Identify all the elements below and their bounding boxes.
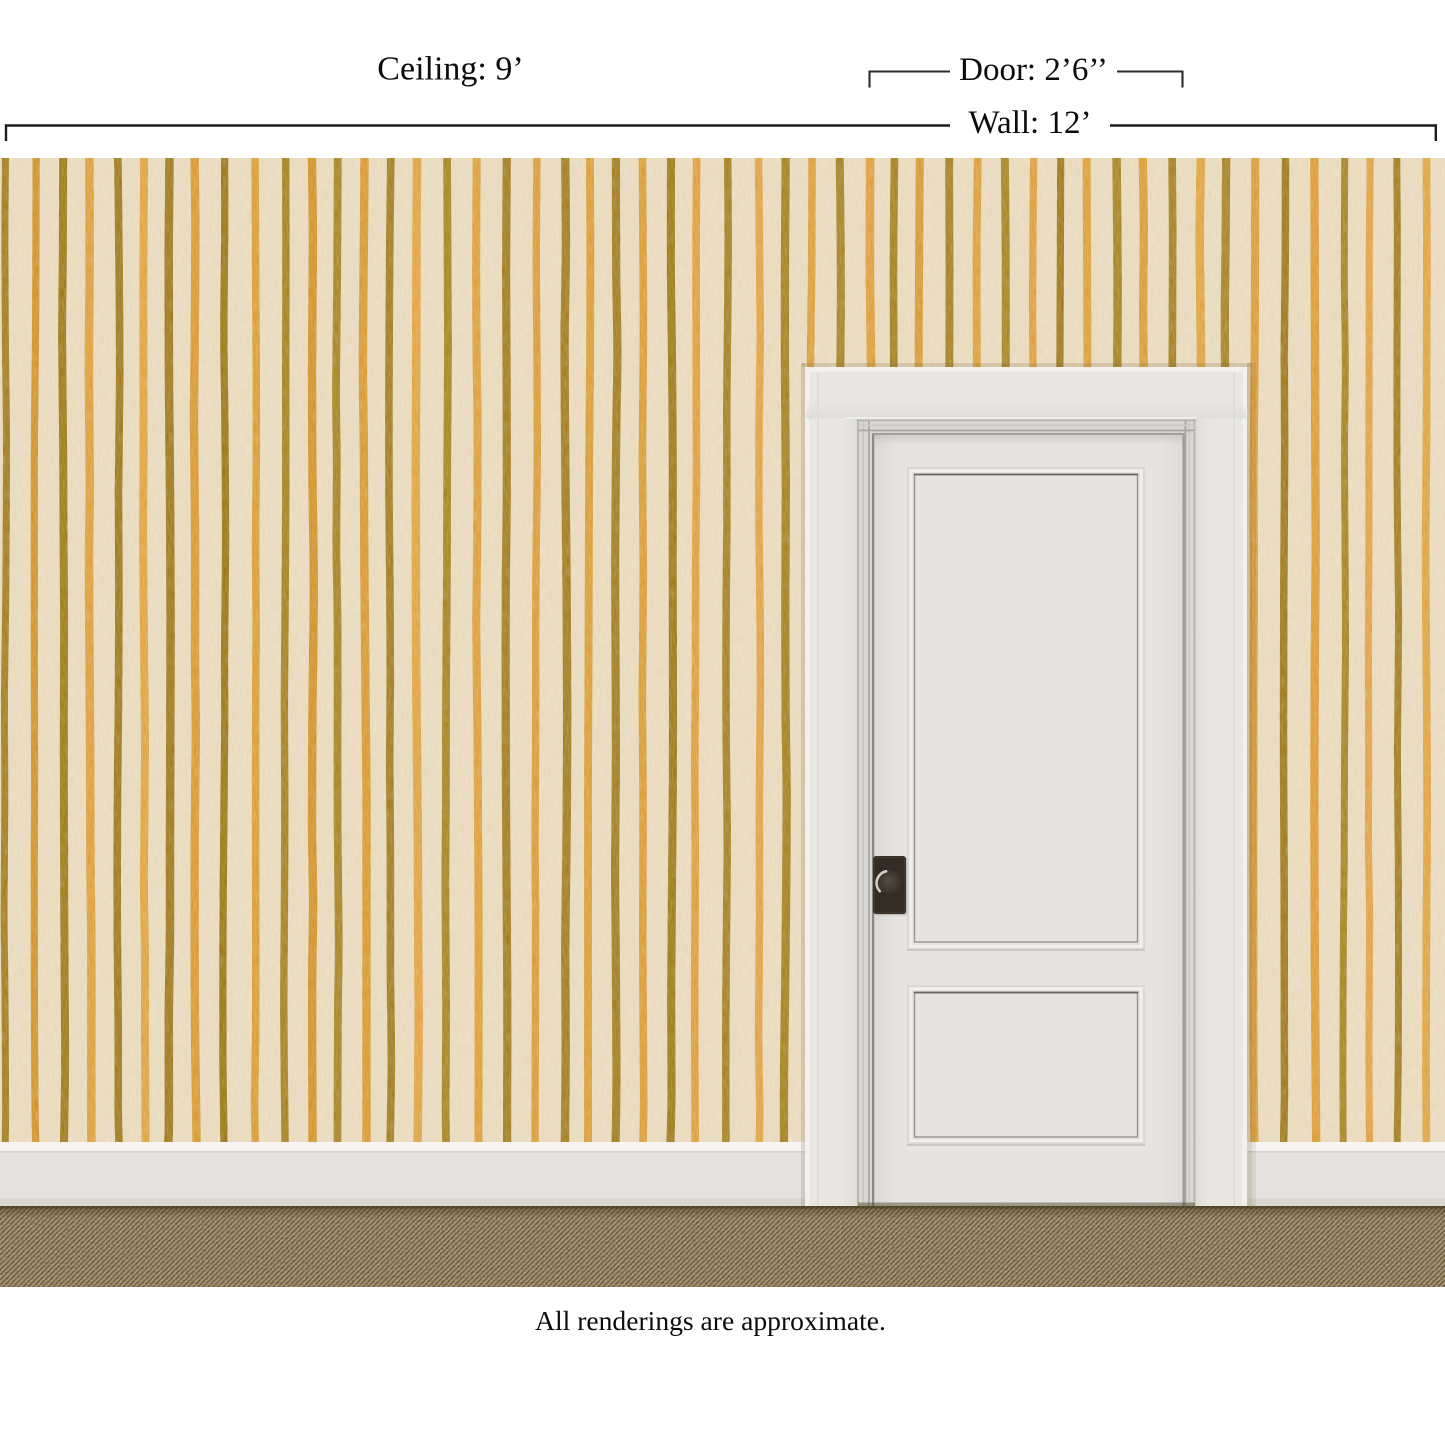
svg-text:Door: 2’6’’: Door: 2’6’’	[959, 52, 1108, 88]
svg-text:Wall: 12’: Wall: 12’	[969, 105, 1092, 141]
svg-text:Ceiling: 9’: Ceiling: 9’	[377, 51, 523, 88]
svg-text:All renderings are approximate: All renderings are approximate.	[535, 1305, 886, 1336]
